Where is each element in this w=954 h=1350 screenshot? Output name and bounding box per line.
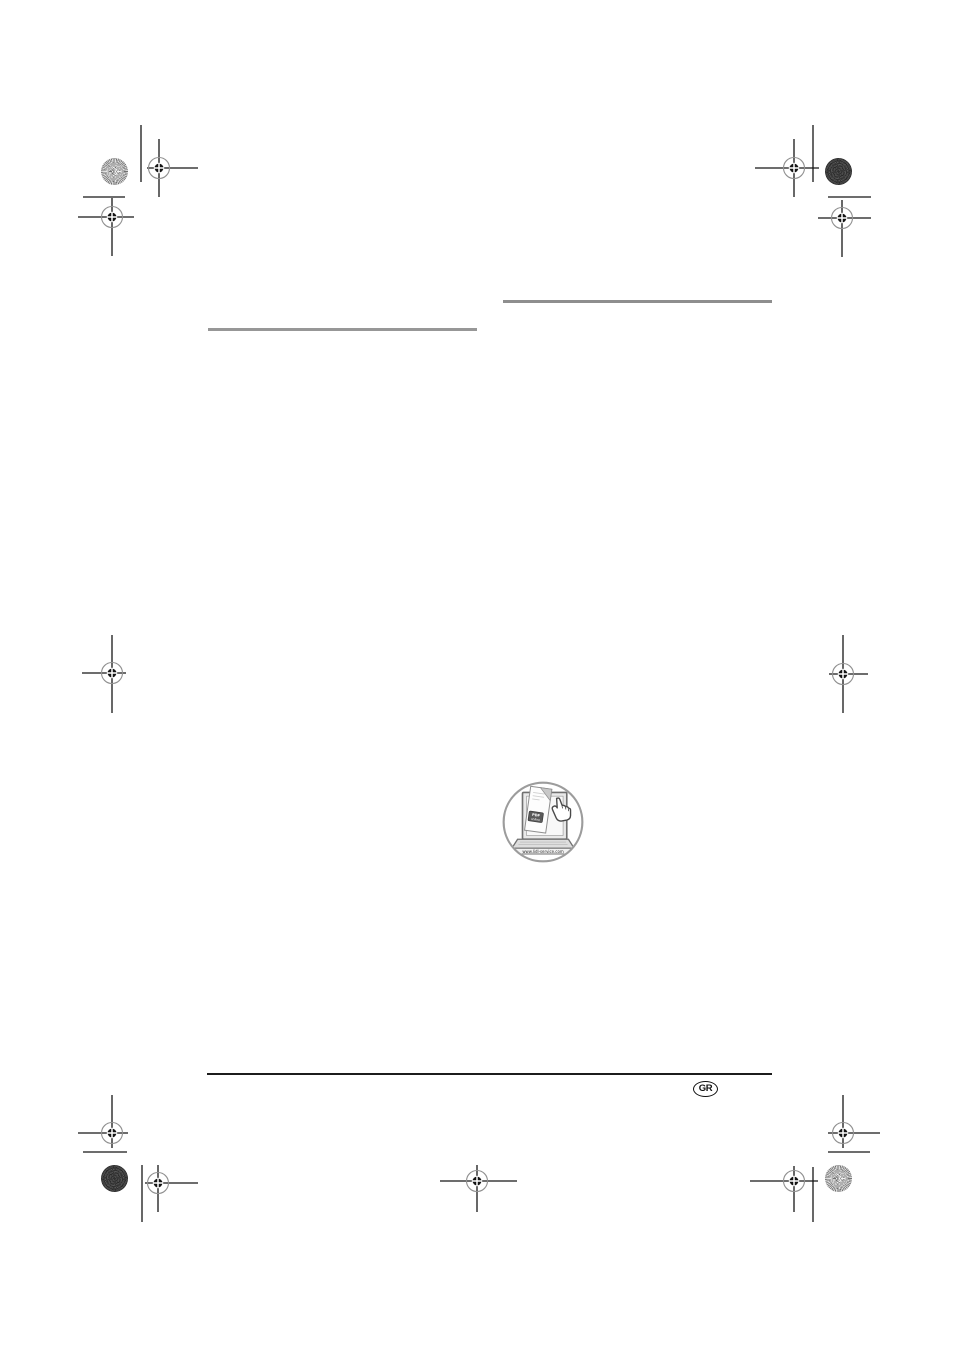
registration-mark bbox=[440, 1165, 517, 1212]
color-control-patch-sunburst bbox=[825, 1165, 852, 1192]
lidl-service-icon: PDF online www.lidl-service.com bbox=[502, 781, 584, 863]
registration-mark bbox=[78, 198, 134, 256]
registration-mark bbox=[829, 635, 868, 713]
registration-mark bbox=[82, 635, 126, 713]
left-column-heading-rule bbox=[208, 328, 477, 331]
color-control-patch-sunburst bbox=[101, 158, 128, 185]
registration-mark bbox=[750, 1166, 818, 1212]
crop-marks bbox=[83, 125, 871, 1222]
registration-mark bbox=[828, 1095, 880, 1148]
print-registration-marks bbox=[0, 0, 954, 1350]
pdf-online-badge: PDF online bbox=[528, 811, 544, 823]
footer-rule bbox=[207, 1073, 772, 1075]
registration-mark bbox=[78, 1095, 128, 1148]
document-page: PDF online www.lidl-service.com GR bbox=[0, 0, 954, 1350]
language-badge-gr: GR bbox=[693, 1081, 718, 1097]
registration-mark bbox=[755, 139, 819, 197]
color-control-patch-speckle bbox=[101, 1165, 128, 1192]
language-badge-label: GR bbox=[699, 1084, 712, 1094]
registration-mark bbox=[147, 139, 198, 197]
registration-mark bbox=[818, 200, 871, 257]
service-url-label: www.lidl-service.com bbox=[522, 849, 564, 854]
color-control-patch-speckle bbox=[825, 158, 852, 185]
registration-mark bbox=[145, 1165, 198, 1212]
right-column-heading-rule bbox=[503, 300, 772, 303]
